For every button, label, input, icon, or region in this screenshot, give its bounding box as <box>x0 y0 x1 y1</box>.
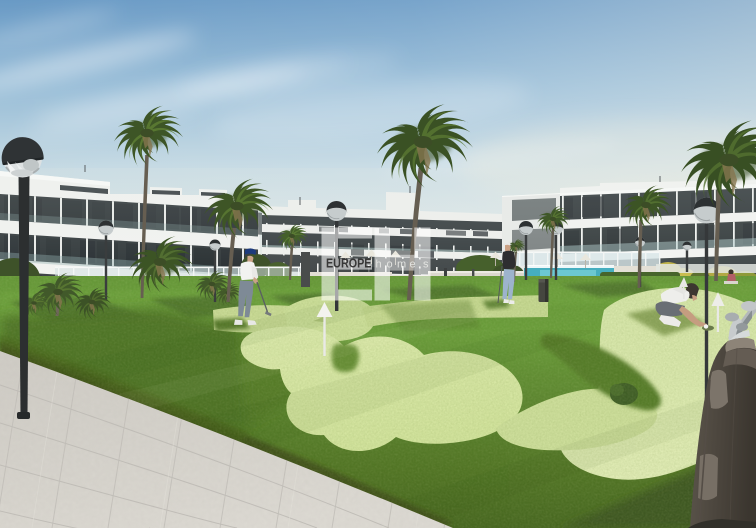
svg-text:s: s <box>423 259 429 271</box>
svg-text:h: h <box>376 259 382 271</box>
svg-text:e: e <box>410 259 416 271</box>
svg-text:EUROPE: EUROPE <box>326 256 372 271</box>
svg-text:m: m <box>397 259 406 271</box>
svg-text:o: o <box>387 259 393 271</box>
